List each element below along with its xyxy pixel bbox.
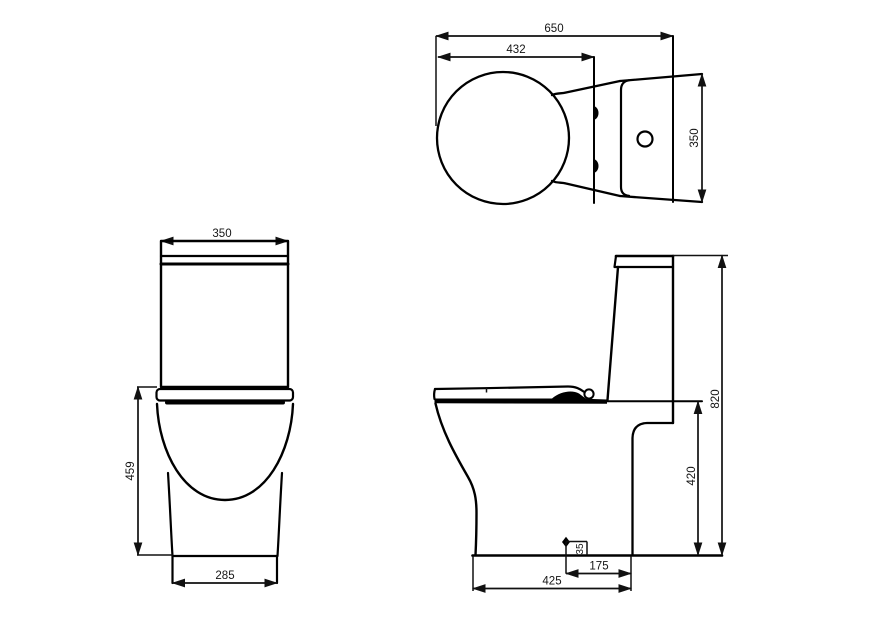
dim-label-base-depth: 425: [542, 576, 561, 588]
tank-plan-top-edge: [620, 74, 702, 81]
dim-label-width: 350: [689, 128, 701, 147]
dim-label-outlet-height: 35: [575, 543, 586, 555]
front-view: 350 285 459: [125, 228, 293, 583]
seat-shelf-front: [157, 389, 294, 401]
dim-label-bowl-height: 420: [686, 466, 698, 485]
seat-to-tank-top-edge: [552, 81, 620, 95]
tank-front-wall: [608, 267, 619, 400]
dim-label-seat-depth: 432: [506, 44, 525, 56]
dim-label-base-width: 285: [215, 570, 234, 582]
dim-label-tank-width: 350: [212, 228, 231, 240]
seat-hinge-pin: [584, 389, 593, 398]
seat-to-tank-bottom-edge: [552, 181, 620, 196]
dim-label-overall-height: 820: [710, 389, 722, 408]
dim-label-overall-depth: 650: [544, 23, 563, 35]
dim-label-outlet-setout: 175: [589, 561, 608, 573]
pedestal-right-edge: [278, 473, 283, 556]
tank-lid-seam: [615, 256, 674, 267]
flush-button: [638, 132, 653, 147]
tank-plan-bottom-edge: [620, 196, 702, 202]
drawing-page: 650 432 350 350: [0, 0, 891, 628]
tank-plan-front-edge: [621, 80, 629, 196]
plan-view: 650 432 350: [436, 23, 702, 204]
bowl-front-profile: [436, 404, 477, 556]
bowl-rear-profile: [633, 423, 674, 555]
seat-ring-plan: [437, 72, 569, 204]
pedestal-left-edge: [168, 473, 173, 556]
side-view: 820 420 35 175 425: [434, 256, 728, 592]
seat-rim-bar: [435, 391, 608, 403]
toilet-technical-drawing: 650 432 350 350: [0, 0, 891, 628]
seat-gap-bar: [165, 401, 285, 405]
bowl-front-arc: [157, 404, 293, 500]
seat-lid-nose: [434, 389, 435, 399]
hinge-bump-bottom: [594, 159, 599, 173]
dim-label-seat-height: 459: [125, 461, 137, 480]
seat-lid-top: [435, 387, 584, 392]
hinge-bump-top: [594, 106, 599, 120]
